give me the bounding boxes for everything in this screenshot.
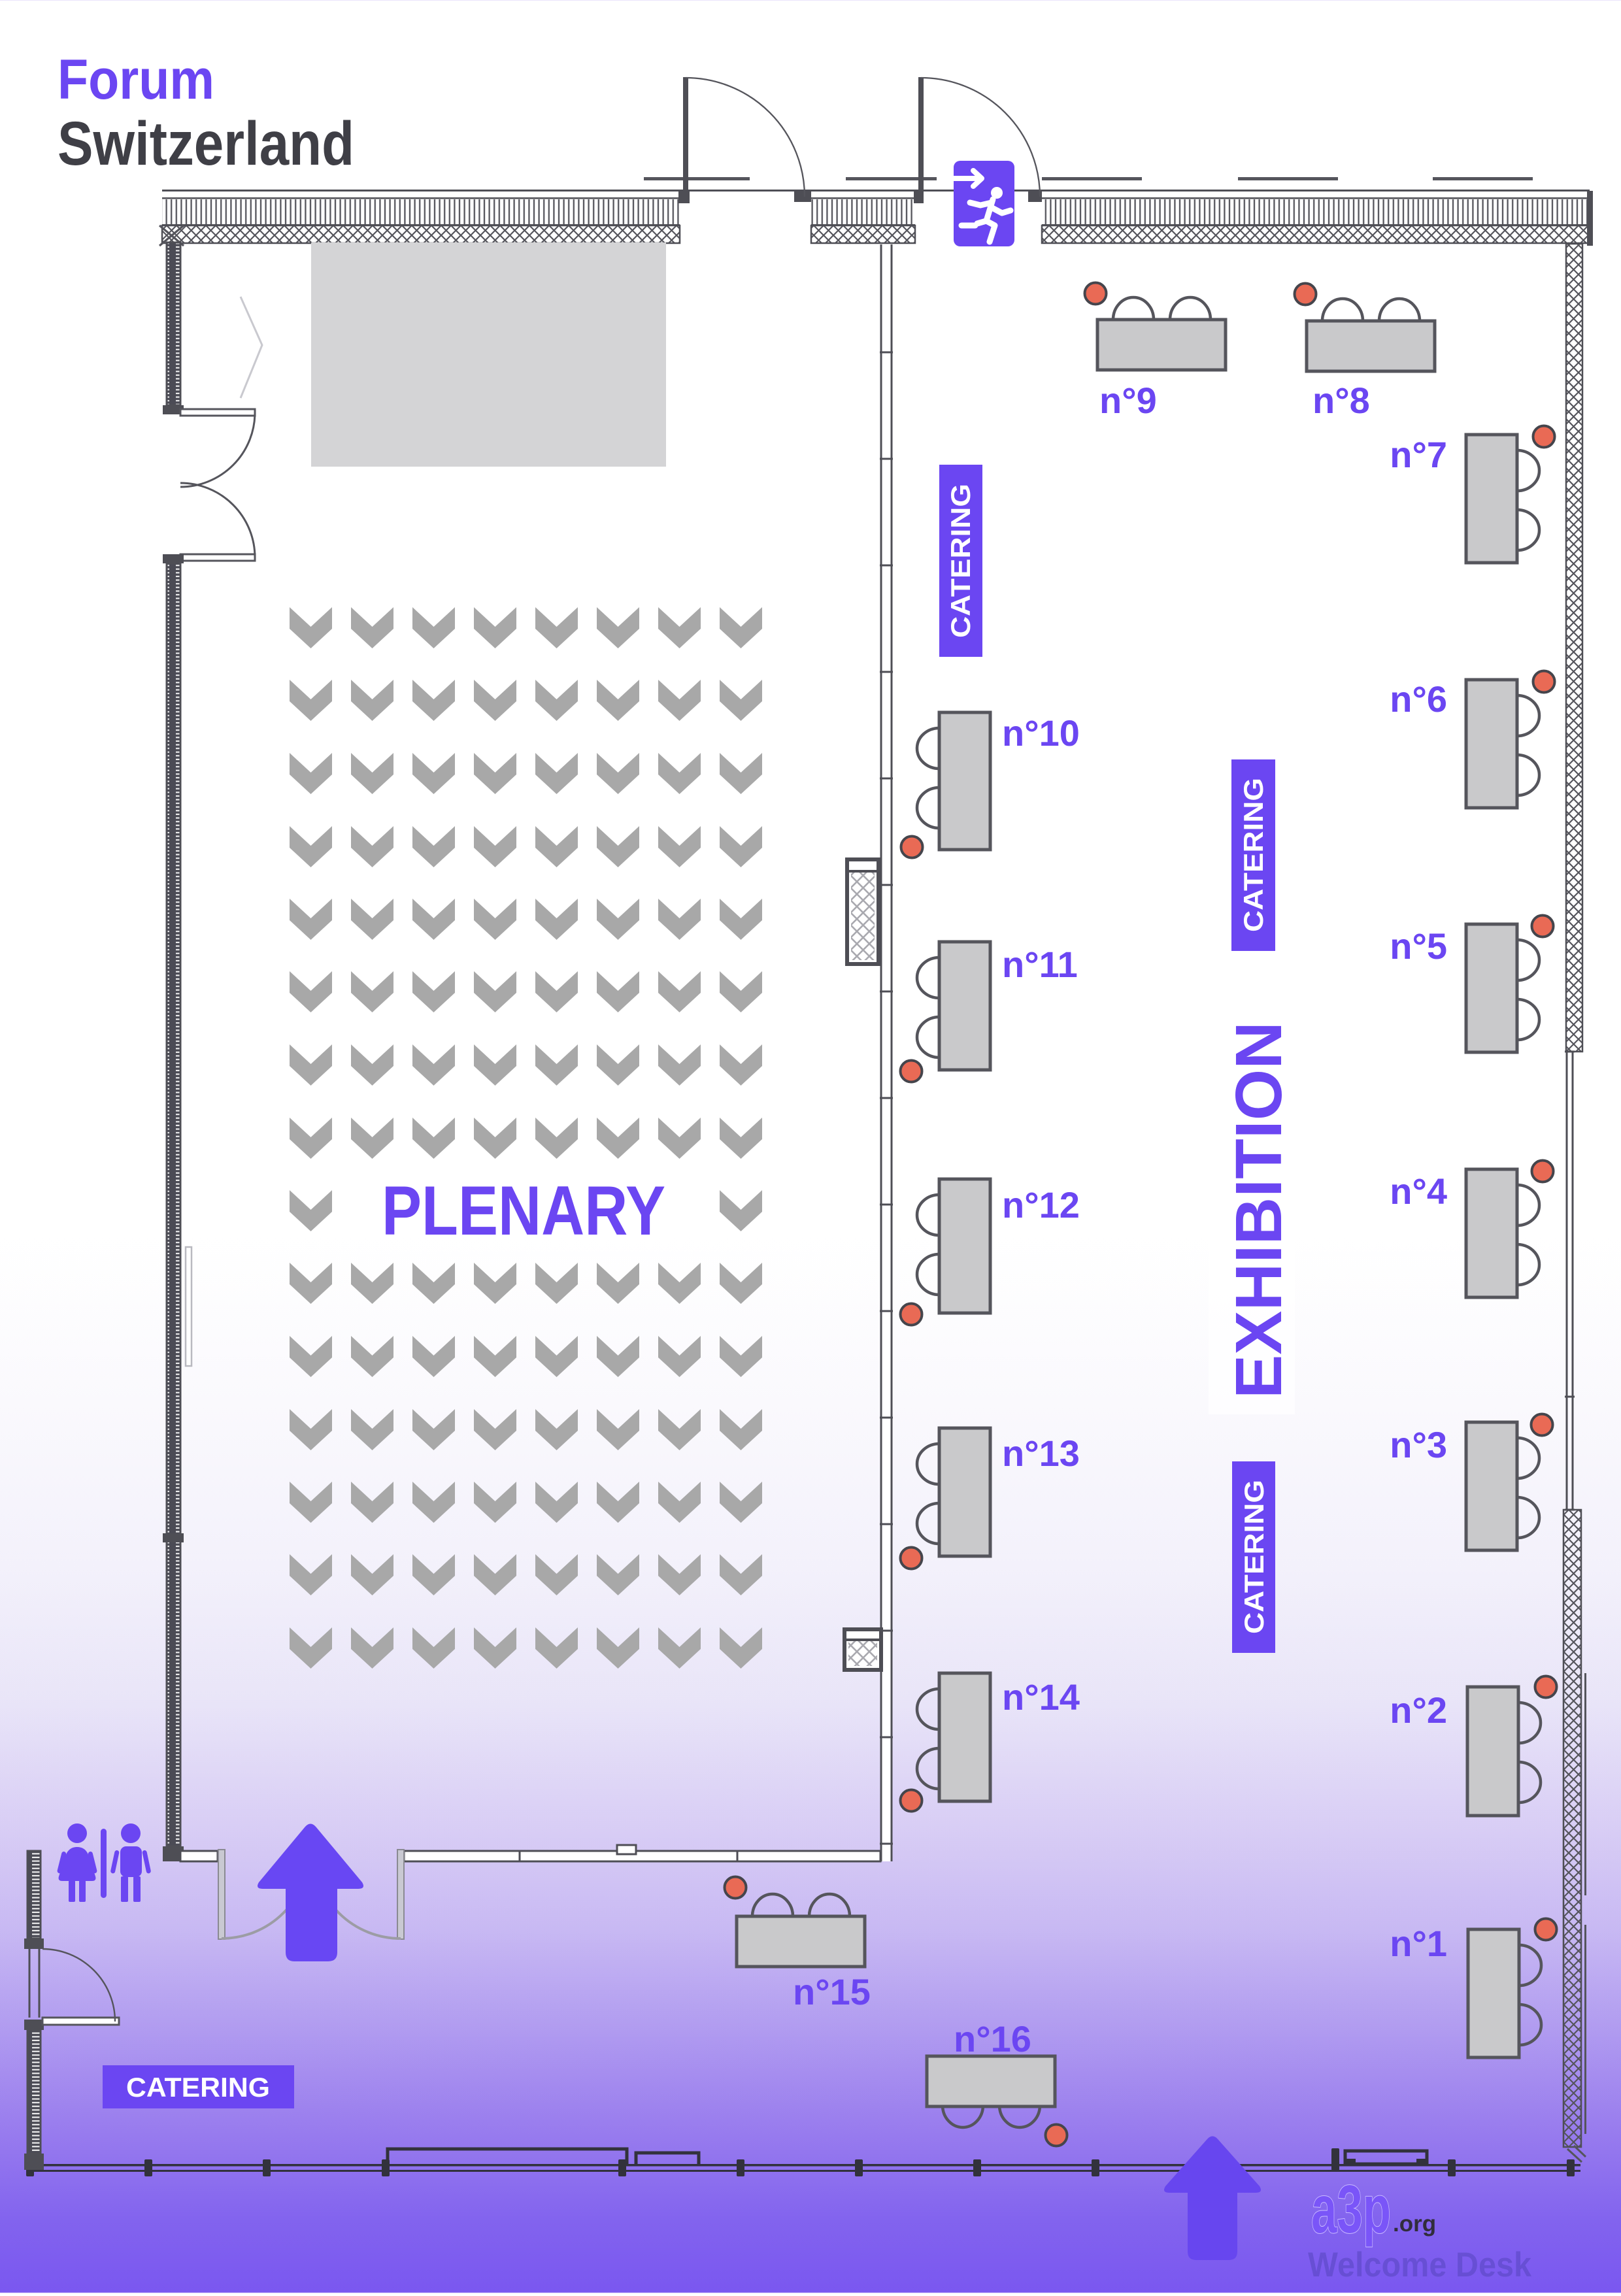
svg-text:n°6: n°6 [1390,678,1447,720]
svg-text:n°3: n°3 [1390,1424,1447,1465]
svg-text:EXHIBITION: EXHIBITION [1222,1022,1295,1399]
svg-text:n°5: n°5 [1390,925,1447,967]
svg-text:n°2: n°2 [1390,1689,1447,1731]
svg-text:n°12: n°12 [1002,1184,1080,1225]
svg-text:CATERING: CATERING [1238,778,1269,932]
svg-text:.org: .org [1393,2211,1436,2237]
svg-text:Forum: Forum [58,48,214,111]
svg-text:PLENARY: PLENARY [382,1171,665,1250]
svg-text:Switzerland: Switzerland [58,109,354,178]
svg-text:a3p: a3p [1311,2172,1391,2248]
svg-text:n°13: n°13 [1002,1433,1080,1474]
svg-text:n°1: n°1 [1390,1923,1447,1964]
svg-text:CATERING: CATERING [126,2072,270,2103]
svg-text:CATERING: CATERING [945,484,976,638]
svg-text:n°16: n°16 [954,2018,1031,2059]
svg-text:Welcome Desk: Welcome Desk [1308,2246,1531,2284]
svg-text:n°7: n°7 [1390,434,1447,475]
svg-text:n°15: n°15 [793,1971,871,2012]
svg-text:n°9: n°9 [1099,380,1157,421]
svg-text:n°8: n°8 [1312,380,1370,421]
svg-text:n°11: n°11 [1002,944,1078,985]
svg-text:n°4: n°4 [1390,1171,1447,1212]
svg-text:n°10: n°10 [1002,712,1080,754]
svg-text:n°14: n°14 [1002,1676,1080,1718]
svg-text:CATERING: CATERING [1239,1480,1269,1634]
